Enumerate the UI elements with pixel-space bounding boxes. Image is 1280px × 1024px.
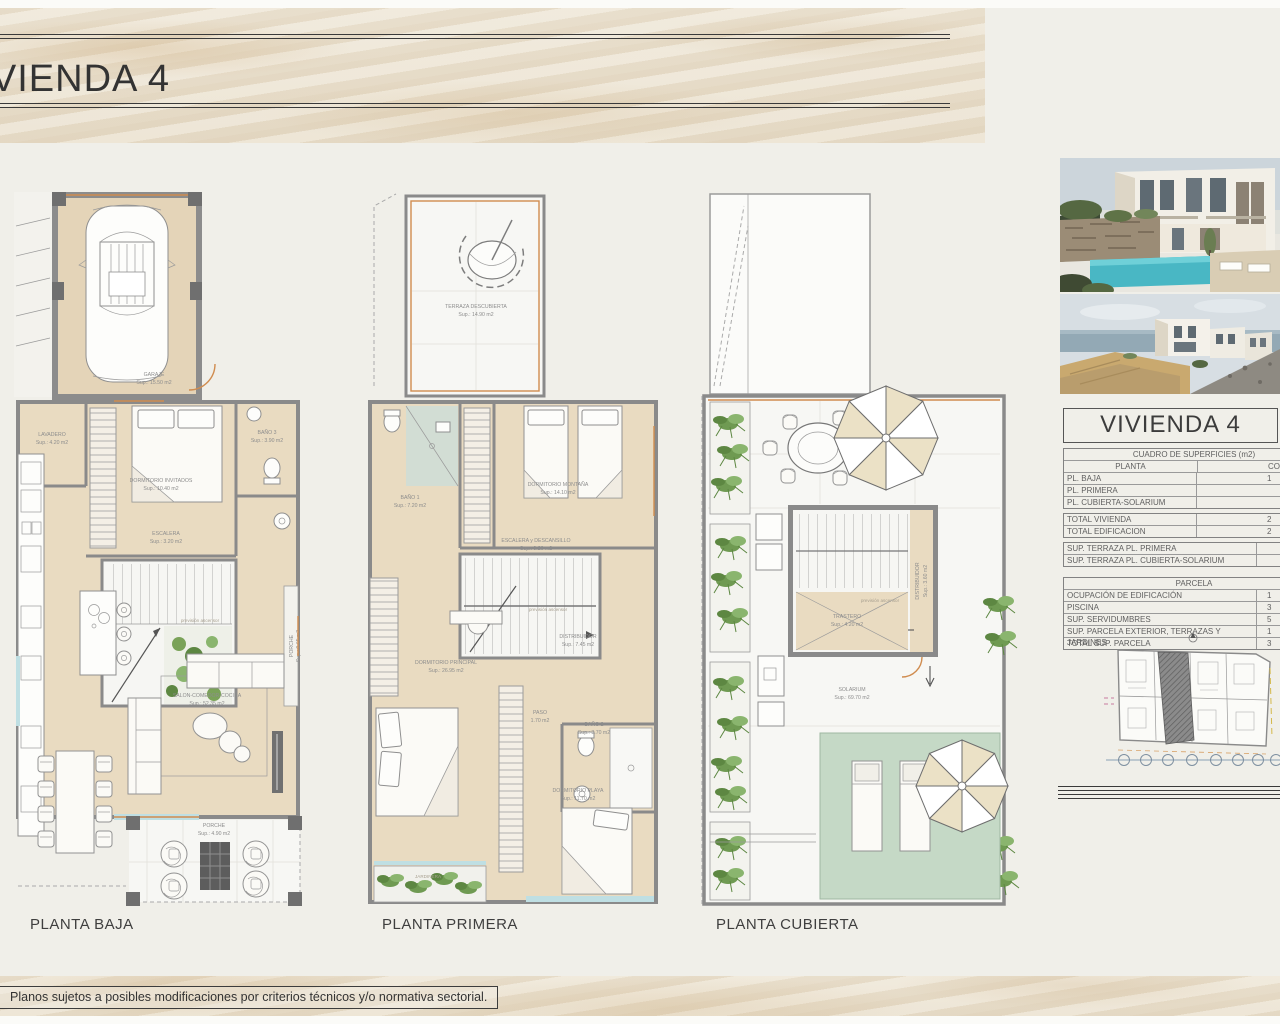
parcela-header: PARCELA [1064,578,1280,590]
svg-text:BAÑO 3: BAÑO 3 [257,429,276,436]
table-row: TOTAL VIVIENDA 2 [1064,514,1280,526]
elevator-provision-note: previsión ascensor [181,618,220,623]
svg-text:Sup.: 7.45 m2: Sup.: 7.45 m2 [562,642,594,648]
svg-text:Sup.: 15.50 m2: Sup.: 15.50 m2 [136,380,171,386]
svg-text:Sup.: 14.90 m2: Sup.: 14.90 m2 [458,312,493,318]
svg-text:DORMITORIO PRINCIPAL: DORMITORIO PRINCIPAL [415,660,477,666]
svg-text:Sup.: 26.95 m2: Sup.: 26.95 m2 [428,668,463,674]
page-title: VIVIENDA 4 [0,58,170,101]
table-row: SUP. TERRAZA PL. PRIMERA [1064,543,1280,555]
caption-planta-cubierta: PLANTA CUBIERTA [716,916,859,933]
terrace: TERRAZA DESCUBIERTA Sup.: 14.90 m2 [374,194,544,396]
svg-text:previsión ascensor: previsión ascensor [861,598,900,603]
floor-plan-planta-baja: GARAJE Sup.: 15.50 m2 LAVADERO Sup.: 4.2… [14,186,316,916]
svg-text:DORMITORIO MONTAÑA: DORMITORIO MONTAÑA [528,481,589,488]
svg-text:Sup.: 4.90 m2: Sup.: 4.90 m2 [198,831,230,837]
table-header: CUADRO DE SUPERFICIES (m2) [1064,449,1280,461]
table-row: PL. PRIMERA [1064,485,1280,497]
svg-text:DORMITORIO PLAYA: DORMITORIO PLAYA [552,788,604,794]
surface-summary-table: VIVIENDA 4 CUADRO DE SUPERFICIES (m2) PL… [1063,408,1280,650]
right-rule-2 [1058,794,1280,799]
table-row: PL. CUBIERTA-SOLARIUM [1064,497,1280,508]
ground-floor-body: LAVADERO Sup.: 4.20 m2 DORMITORIO INVITA… [16,400,302,853]
svg-text:BAÑO 1: BAÑO 1 [400,494,419,501]
disclaimer: Planos sujetos a posibles modificaciones… [0,986,498,1009]
header-texture-band: VIVIENDA 4 [0,8,985,143]
svg-text:SALON-COMEDOR-COCINA: SALON-COMEDOR-COCINA [173,693,242,699]
garage: GARAJE Sup.: 15.50 m2 [52,192,215,400]
upper-void [710,194,870,394]
svg-text:Sup.: 69.70 m2: Sup.: 69.70 m2 [834,695,869,701]
table-subheader: PLANTA CONSTRUIDA [1064,461,1280,473]
caption-planta-baja: PLANTA BAJA [30,916,134,933]
svg-text:LAVADERO: LAVADERO [38,432,65,438]
room-label: GARAJE [144,372,165,378]
svg-text:Sup.: 14.10 m2: Sup.: 14.10 m2 [540,490,575,496]
beach-bed [562,808,632,894]
table-row: OCUPACIÓN DE EDIFICACIÓN 1 [1064,590,1280,602]
north-arrow [1189,632,1197,642]
svg-text:PORCHE: PORCHE [203,823,226,829]
svg-text:Sup.: 3.70 m2: Sup.: 3.70 m2 [578,730,610,736]
table-row: PISCINA 3 [1064,602,1280,614]
roof-terrace: DISTRIBUIDOR Sup.: 3.60 m2 previsión asc… [702,386,1019,904]
solarium-deck [820,733,1008,899]
svg-text:PASO: PASO [533,710,547,716]
render-photo-pool [1060,158,1280,292]
header-rule-top [0,34,950,39]
svg-text:ESCALERA: ESCALERA [152,531,180,537]
site-plan [1098,628,1280,786]
svg-text:Sup.: 7.20 m2: Sup.: 7.20 m2 [394,503,426,509]
car-top-view [79,205,175,382]
render-photo-coast [1060,294,1280,394]
planter: JARDINERA [374,863,486,902]
right-rule-1 [1058,786,1280,791]
driveway [14,192,52,397]
main-bed [376,708,458,816]
table-row: SUP. SERVIDUMBRES 5 [1064,614,1280,626]
svg-text:Sup.: 4.20 m2: Sup.: 4.20 m2 [36,440,68,446]
first-floor-body: BAÑO 1 Sup.: 7.20 m2 DORMITORIO MONTAÑA … [368,400,658,904]
svg-text:previsión ascensor: previsión ascensor [529,607,568,612]
svg-text:Sup.: 10.40 m2: Sup.: 10.40 m2 [143,486,178,492]
svg-text:JARDINERA: JARDINERA [415,874,442,879]
svg-text:Sup.: 52.35 m2: Sup.: 52.35 m2 [189,701,224,707]
svg-text:Sup.: 0.65 m2: Sup.: 0.65 m2 [296,630,302,662]
caption-planta-primera: PLANTA PRIMERA [382,916,518,933]
svg-text:Sup.: 11.70 m2: Sup.: 11.70 m2 [561,796,596,802]
table-row: TOTAL EDIFICACION 2 [1064,526,1280,537]
floor-plan-planta-cubierta: DISTRIBUIDOR Sup.: 3.60 m2 previsión asc… [700,186,1020,916]
svg-text:Sup.: 4.20 m2: Sup.: 4.20 m2 [831,622,863,628]
svg-text:Sup.: 3.60 m2: Sup.: 3.60 m2 [923,565,929,597]
svg-text:DISTRIBUIDOR: DISTRIBUIDOR [915,562,921,599]
floor-plan-planta-primera: TERRAZA DESCUBIERTA Sup.: 14.90 m2 BAÑO … [366,186,666,916]
svg-text:Sup.: 3.20 m2: Sup.: 3.20 m2 [150,539,182,545]
summary-title: VIVIENDA 4 [1063,408,1278,443]
svg-text:1.70 m2: 1.70 m2 [531,718,550,724]
top-strip [0,0,1280,8]
svg-text:PORCHE: PORCHE [289,634,295,657]
svg-text:TRASTERO: TRASTERO [833,614,861,620]
svg-text:SOLARIUM: SOLARIUM [838,687,865,693]
table-row: SUP. TERRAZA PL. CUBIERTA-SOLARIUM [1064,555,1280,566]
svg-text:DORMITORIO INVITADOS: DORMITORIO INVITADOS [130,478,193,484]
svg-text:Sup.: 9.20 m2: Sup.: 9.20 m2 [520,546,552,552]
left-planters [710,402,750,900]
header-rule-bottom [0,103,950,108]
bottom-strip [0,1016,1280,1024]
svg-text:DISTRIBUIDOR: DISTRIBUIDOR [559,634,596,640]
plan-sheet: VIVIENDA 4 [0,0,1280,1024]
stools [117,603,131,665]
svg-text:BAÑO 2: BAÑO 2 [584,721,603,728]
table-row: PL. BAJA 1 [1064,473,1280,485]
svg-text:ESCALERA y DESCANSILLO: ESCALERA y DESCANSILLO [501,538,570,544]
svg-text:TERRAZA DESCUBIERTA: TERRAZA DESCUBIERTA [445,304,507,310]
svg-text:Sup.: 3.90 m2: Sup.: 3.90 m2 [251,438,283,444]
